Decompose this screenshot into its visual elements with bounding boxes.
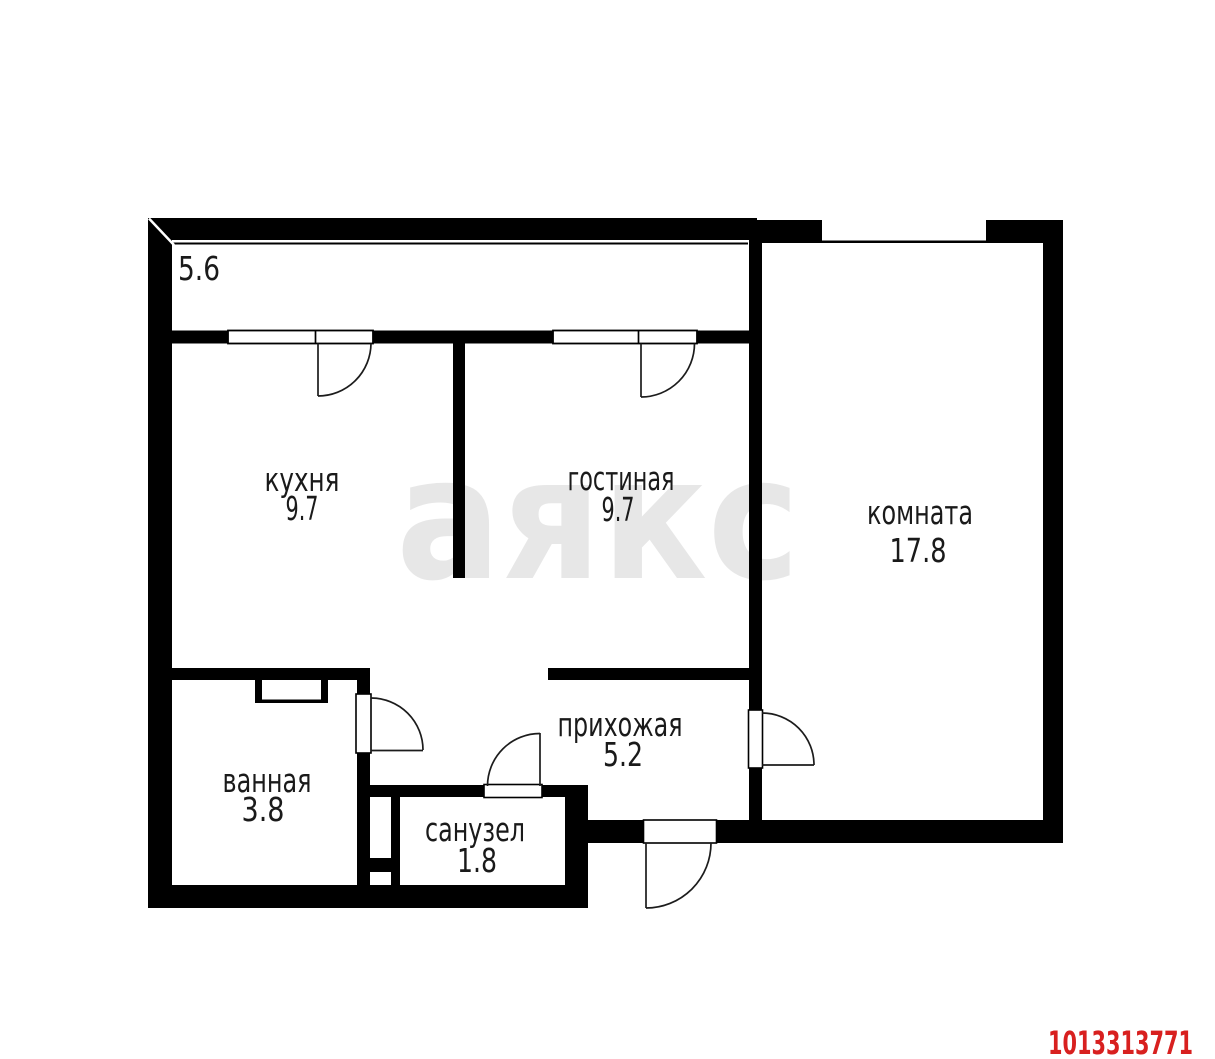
entrance-door [644, 820, 717, 908]
wc-door [484, 733, 542, 798]
bathroom-door-jamb [356, 694, 371, 753]
outer-bottom-wall-left-section [148, 885, 588, 908]
wc-area-label: 1.8 [457, 841, 497, 880]
room-area-label: 17.8 [890, 531, 947, 570]
living-room-area-label: 9.7 [602, 490, 635, 529]
hallway-room-door-arc [762, 713, 814, 765]
bathroom-niche-inner [262, 680, 321, 700]
room-window-sill-line [822, 241, 986, 244]
bathroom-door [356, 694, 423, 753]
balcony-top-wall [148, 218, 757, 240]
outer-left-wall [148, 218, 172, 908]
bathroom-area-label: 3.8 [242, 790, 285, 829]
wc-top-wall [368, 785, 588, 797]
hallway-area-label: 5.2 [603, 735, 643, 774]
living-balcony-door [641, 344, 695, 398]
entrance-door-jamb [644, 820, 717, 843]
balcony-area-label: 5.6 [178, 249, 220, 288]
floor-plan-page: аякс [0, 0, 1215, 1059]
living-bottom-wall [548, 668, 757, 680]
entrance-door-arc [646, 843, 711, 908]
room-right-wall [1043, 220, 1063, 843]
hallway-room-door-jamb [749, 710, 763, 768]
living-balcony-window [553, 331, 697, 344]
wc-door-arc [488, 734, 541, 787]
living-balcony-door-arc [641, 344, 695, 398]
kitchen-area-label: 9.7 [286, 489, 319, 528]
kitchen-balcony-door-arc [318, 344, 371, 397]
kitchen-balcony-door [318, 344, 371, 397]
hallway-room-door [749, 710, 815, 768]
room-window-opening [822, 219, 986, 243]
kitchen-living-divider-wall [453, 343, 465, 578]
wc-door-jamb [484, 785, 542, 798]
floor-plan-drawing: аякс [0, 0, 1215, 1059]
wc-wall-connector [368, 858, 398, 872]
listing-id: 1013313771 [1048, 1024, 1193, 1059]
bathroom-door-arc [371, 698, 423, 750]
room-name-label: комната [867, 493, 973, 532]
balcony-glazing-line [172, 243, 748, 245]
kitchen-balcony-window [228, 331, 373, 344]
wc-left-wall [391, 797, 400, 887]
